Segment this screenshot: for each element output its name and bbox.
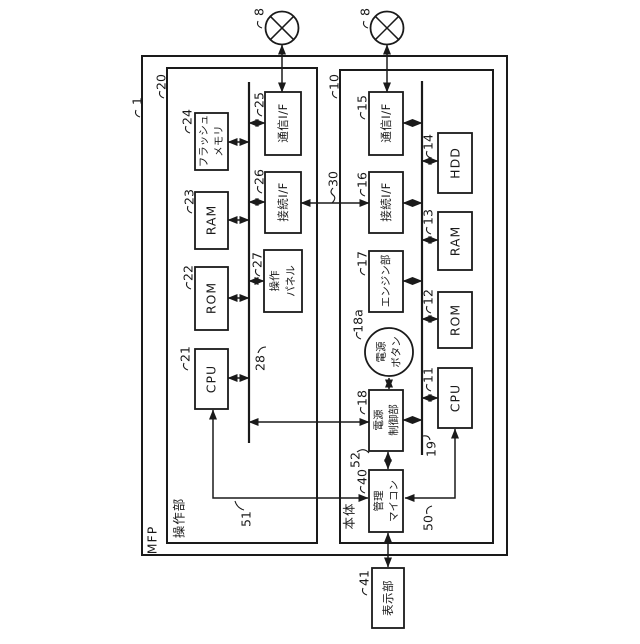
ref-text: 15: [355, 95, 370, 111]
main-body-title: 本体: [342, 502, 357, 529]
ref-text: 28: [253, 355, 268, 371]
op-ram-label: RAM: [204, 205, 219, 236]
main-comm-if-label: 通信I/F: [379, 103, 393, 142]
ref-text: 18: [355, 390, 370, 406]
power-button-label-line2: ボタン: [391, 336, 403, 368]
ref-text: 52: [348, 452, 363, 468]
leader-curve: [427, 506, 432, 514]
management-micon-label-line2: マイコン: [388, 480, 400, 522]
ref-label-16: 16: [355, 172, 370, 196]
network-node-right: [371, 12, 404, 45]
ref-label-51: 51: [235, 501, 254, 527]
leader-curve: [361, 112, 366, 119]
leader-curve: [235, 501, 244, 510]
ref-text: 51: [239, 511, 254, 527]
leader-curve: [427, 306, 432, 313]
ref-label-27: 27: [250, 252, 265, 276]
leader-curve: [427, 151, 432, 158]
ref-label-30: 30: [326, 171, 341, 203]
main-ram-label: RAM: [448, 226, 463, 257]
network-node-left: [266, 12, 299, 45]
ref-label-17: 17: [355, 251, 370, 275]
leader-curve: [361, 268, 366, 275]
ref-text: 22: [181, 265, 196, 281]
ref-label-24: 24: [180, 109, 195, 133]
ref-text: 25: [252, 92, 267, 108]
main-conn-if-label: 接続I/F: [379, 182, 393, 221]
op-comm-if-label: 通信I/F: [276, 103, 290, 142]
ref-text: 27: [250, 252, 265, 268]
leader-curve: [258, 109, 263, 116]
leader-curve: [256, 269, 261, 276]
ref-text: 40: [355, 469, 370, 485]
ref-text: 41: [357, 570, 372, 586]
leader-curve: [427, 384, 432, 391]
ref-label-21: 21: [178, 346, 193, 370]
leader-curve: [333, 91, 338, 98]
leader-curve: [186, 126, 191, 133]
ref-text: 12: [421, 289, 436, 305]
ref-text: 18a: [351, 309, 366, 333]
ref-text: 14: [421, 134, 436, 150]
ref-text: 8: [252, 8, 267, 16]
mfp-block-diagram: フラッシュ メモリ RAM ROM CPU 通信I/F 接続I/F 操作 パネル…: [0, 0, 640, 640]
operation-panel-label-line1: 操作: [268, 270, 281, 291]
leader-curve: [361, 407, 366, 414]
ref-label-18: 18: [355, 390, 370, 414]
op-rom-label: ROM: [204, 282, 219, 314]
ref-text: 24: [180, 109, 195, 125]
ref-label-41: 41: [357, 570, 372, 595]
ref-label-22: 22: [181, 265, 196, 289]
ref-label-52: 52: [348, 450, 370, 468]
leader-curve: [331, 188, 335, 203]
engine-label: エンジン部: [379, 255, 392, 308]
leader-curve: [363, 588, 368, 595]
mfp-title: MFP: [145, 526, 160, 555]
ref-label-28: 28: [253, 347, 268, 371]
ref-text: 20: [154, 74, 169, 90]
flash-memory-label-line2: メモリ: [213, 125, 225, 157]
operation-unit-title: 操作部: [172, 498, 187, 539]
hdd-label: HDD: [448, 147, 463, 179]
power-control-label-line1: 電源: [372, 409, 385, 430]
leader-curve: [187, 282, 192, 289]
ref-label-50: 50: [421, 506, 436, 531]
ref-text: 8: [358, 8, 373, 16]
power-button-label-line1: 電源: [375, 341, 388, 362]
leader-curve: [423, 436, 430, 440]
op-cpu-label: CPU: [204, 365, 219, 393]
leader-curve: [427, 227, 432, 234]
flash-memory-label-line1: フラッシュ: [198, 115, 210, 168]
leader-curve: [258, 347, 266, 353]
leader-curve: [184, 363, 189, 370]
ref-label-8-left: 8: [252, 8, 267, 28]
arrow-opcpu-mgmt: [213, 410, 368, 498]
ref-text: 17: [355, 251, 370, 267]
leader-curve: [258, 186, 263, 193]
power-control-label-line2: 制御部: [387, 404, 400, 436]
main-cpu-label: CPU: [448, 384, 463, 412]
leader-curve: [160, 91, 165, 98]
management-micon-label-line1: 管理: [372, 490, 385, 511]
ref-text: 11: [421, 367, 436, 383]
leader-curve: [361, 189, 366, 196]
ref-label-19: 19: [423, 436, 439, 457]
op-conn-if-label: 接続I/F: [276, 182, 290, 221]
leader-curve: [188, 206, 193, 213]
patent-figure-page: フラッシュ メモリ RAM ROM CPU 通信I/F 接続I/F 操作 パネル…: [0, 0, 640, 640]
ref-label-15: 15: [355, 95, 370, 119]
main-rom-label: ROM: [448, 304, 463, 336]
ref-label-40: 40: [355, 469, 370, 493]
leader-curve: [136, 110, 141, 117]
ref-text: 13: [421, 209, 436, 225]
leader-curve: [258, 21, 263, 28]
ref-text: 23: [182, 189, 197, 205]
ref-text: 16: [355, 172, 370, 188]
leader-curve: [364, 21, 369, 28]
ref-text: 19: [424, 441, 439, 457]
ref-text: 26: [252, 169, 267, 185]
ref-text: 30: [326, 171, 341, 187]
ref-label-18a: 18a: [351, 309, 366, 339]
power-button-circle: [365, 328, 413, 376]
display-unit-label: 表示部: [381, 580, 395, 616]
ref-text: 50: [421, 515, 436, 531]
ref-text: 1: [130, 97, 145, 105]
operation-panel-label-line2: パネル: [285, 265, 297, 297]
ref-text: 10: [327, 74, 342, 90]
leader-curve: [361, 486, 366, 493]
ref-text: 21: [178, 346, 193, 362]
